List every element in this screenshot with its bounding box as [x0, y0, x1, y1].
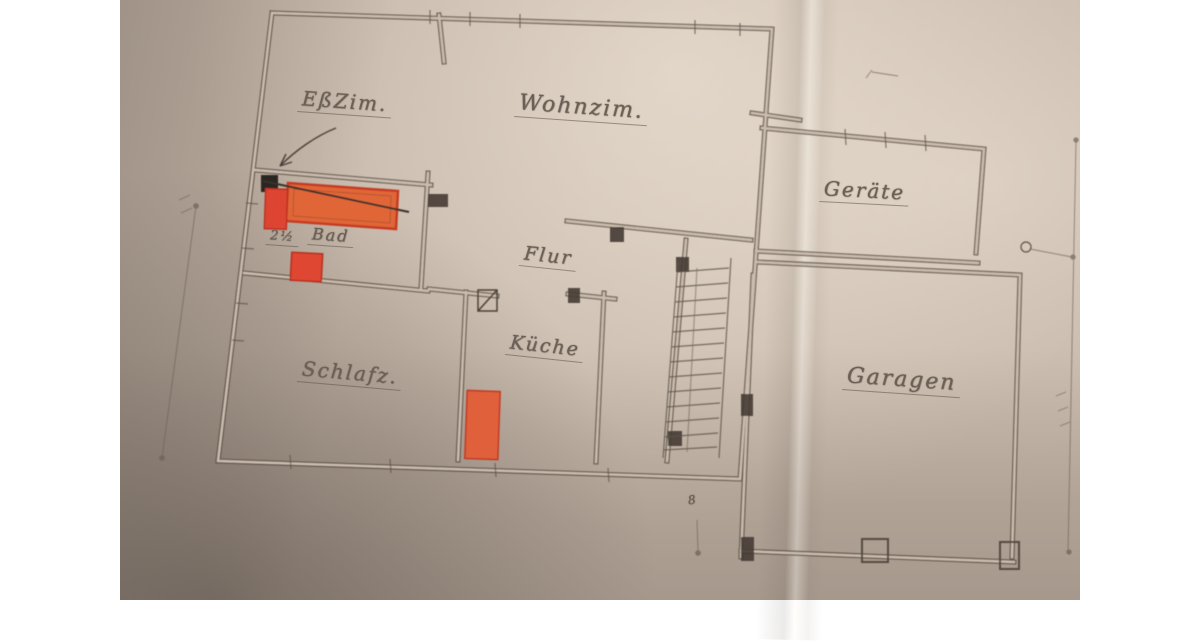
screenshot-root: { "photo": { "description_label": "hand-… [0, 0, 1200, 600]
garage-corner-circle [1021, 242, 1031, 252]
door-swing-arrow [280, 128, 336, 166]
floor-plan-linework [0, 0, 1200, 600]
staircase [663, 258, 731, 458]
door-posts [428, 194, 754, 561]
garage-door-posts [862, 539, 1019, 569]
toilet-highlight [264, 189, 287, 230]
kitchen-appliance-highlight [465, 390, 500, 459]
room-note-bad: 2½ [265, 228, 299, 247]
room-label-bad: Bad [307, 224, 354, 248]
sink-highlight [290, 252, 322, 282]
room-label-geraete: Geräte [819, 176, 909, 207]
dimension-text: 8 [683, 492, 701, 509]
